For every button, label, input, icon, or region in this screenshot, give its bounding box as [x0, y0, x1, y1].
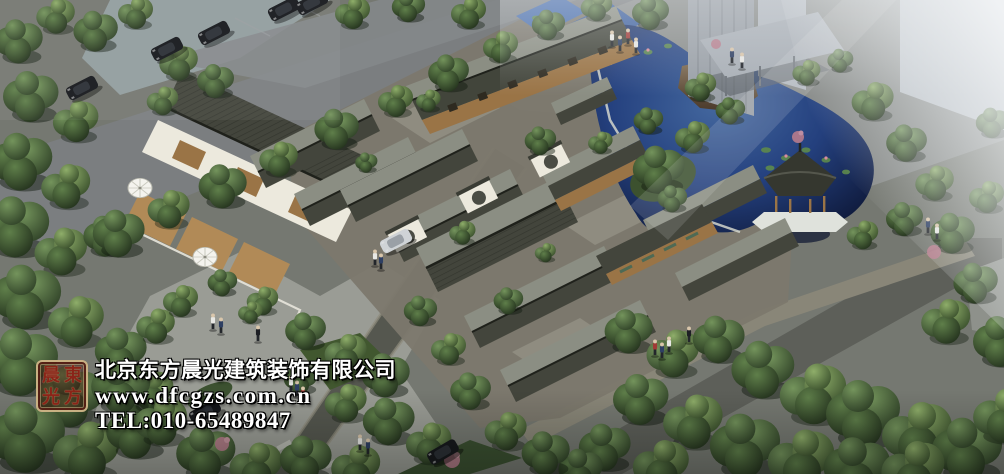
patio-umbrella	[128, 178, 152, 197]
rendering-stage: 晨 東 光 方 北京东方晨光建筑装饰有限公司 www.dfcgzs.com.cn…	[0, 0, 1004, 474]
patio-umbrella	[193, 247, 217, 266]
scene-svg	[0, 0, 1004, 474]
